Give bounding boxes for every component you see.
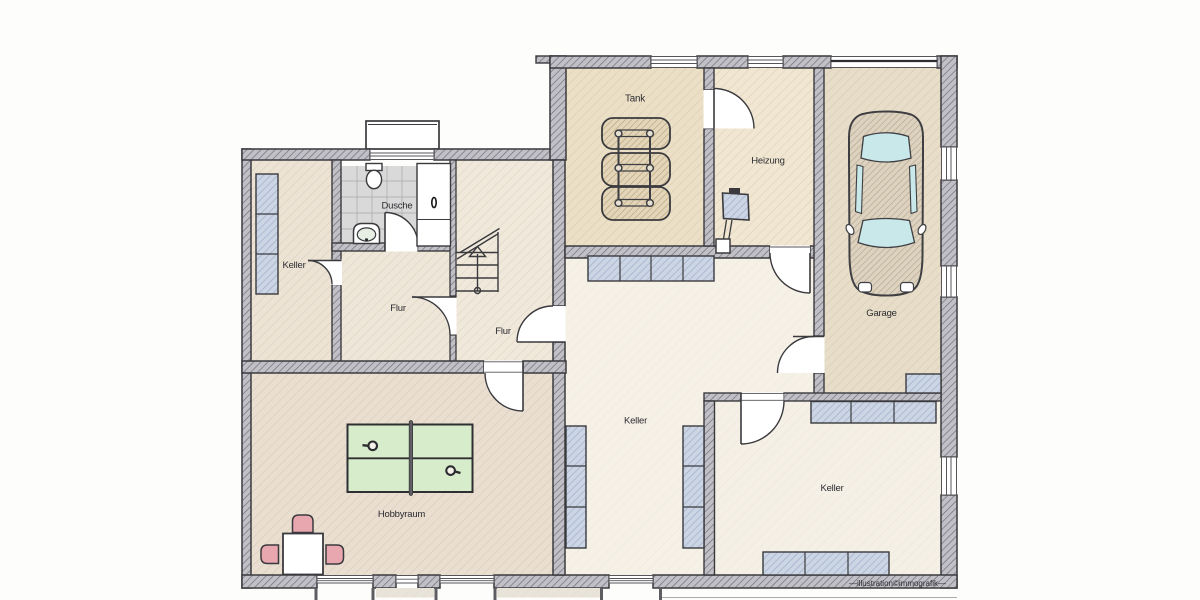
svg-text:Keller: Keller <box>282 260 305 271</box>
svg-text:Garage: Garage <box>866 308 897 319</box>
svg-text:—illustration©immografik—: —illustration©immografik— <box>849 579 946 588</box>
svg-text:Heizung: Heizung <box>751 156 784 167</box>
svg-text:Tank: Tank <box>625 94 645 105</box>
svg-text:Keller: Keller <box>624 416 647 427</box>
svg-text:Flur: Flur <box>390 303 406 314</box>
svg-text:Keller: Keller <box>820 483 843 494</box>
svg-text:Flur: Flur <box>495 326 511 337</box>
svg-text:Hobbyraum: Hobbyraum <box>378 509 426 520</box>
svg-text:Dusche: Dusche <box>381 201 412 212</box>
